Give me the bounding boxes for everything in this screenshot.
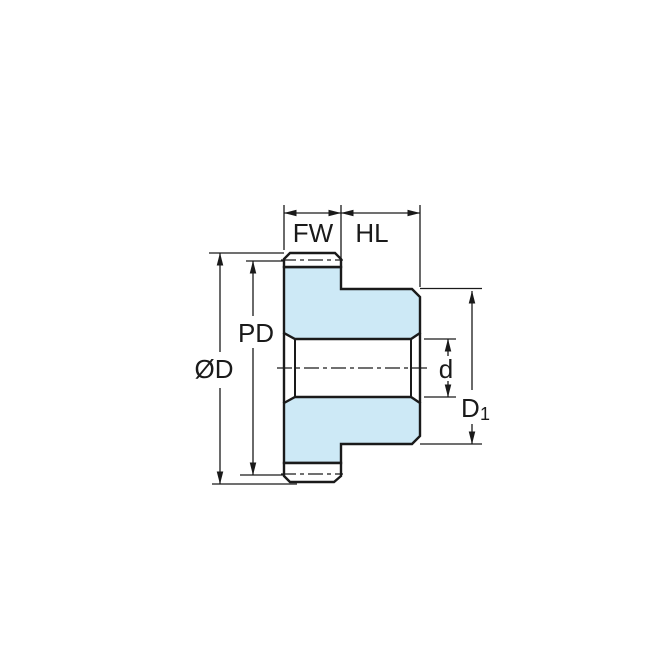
label-hub-diameter-subscript: 1 — [480, 404, 490, 424]
label-face-width: FW — [293, 218, 334, 248]
label-pitch-diameter: PD — [238, 318, 274, 348]
gear-cross-section-drawing: FW HL PD ØD d D 1 — [0, 0, 670, 670]
bottom-tooth — [284, 463, 341, 482]
technical-drawing-canvas: FW HL PD ØD d D 1 — [0, 0, 670, 670]
label-hub-diameter: D — [461, 393, 480, 423]
label-outside-diameter: ØD — [195, 354, 234, 384]
label-bore-diameter: d — [439, 354, 453, 384]
label-hub-length: HL — [355, 218, 388, 248]
gear-lower-section — [284, 397, 420, 463]
gear-upper-section — [284, 267, 420, 339]
